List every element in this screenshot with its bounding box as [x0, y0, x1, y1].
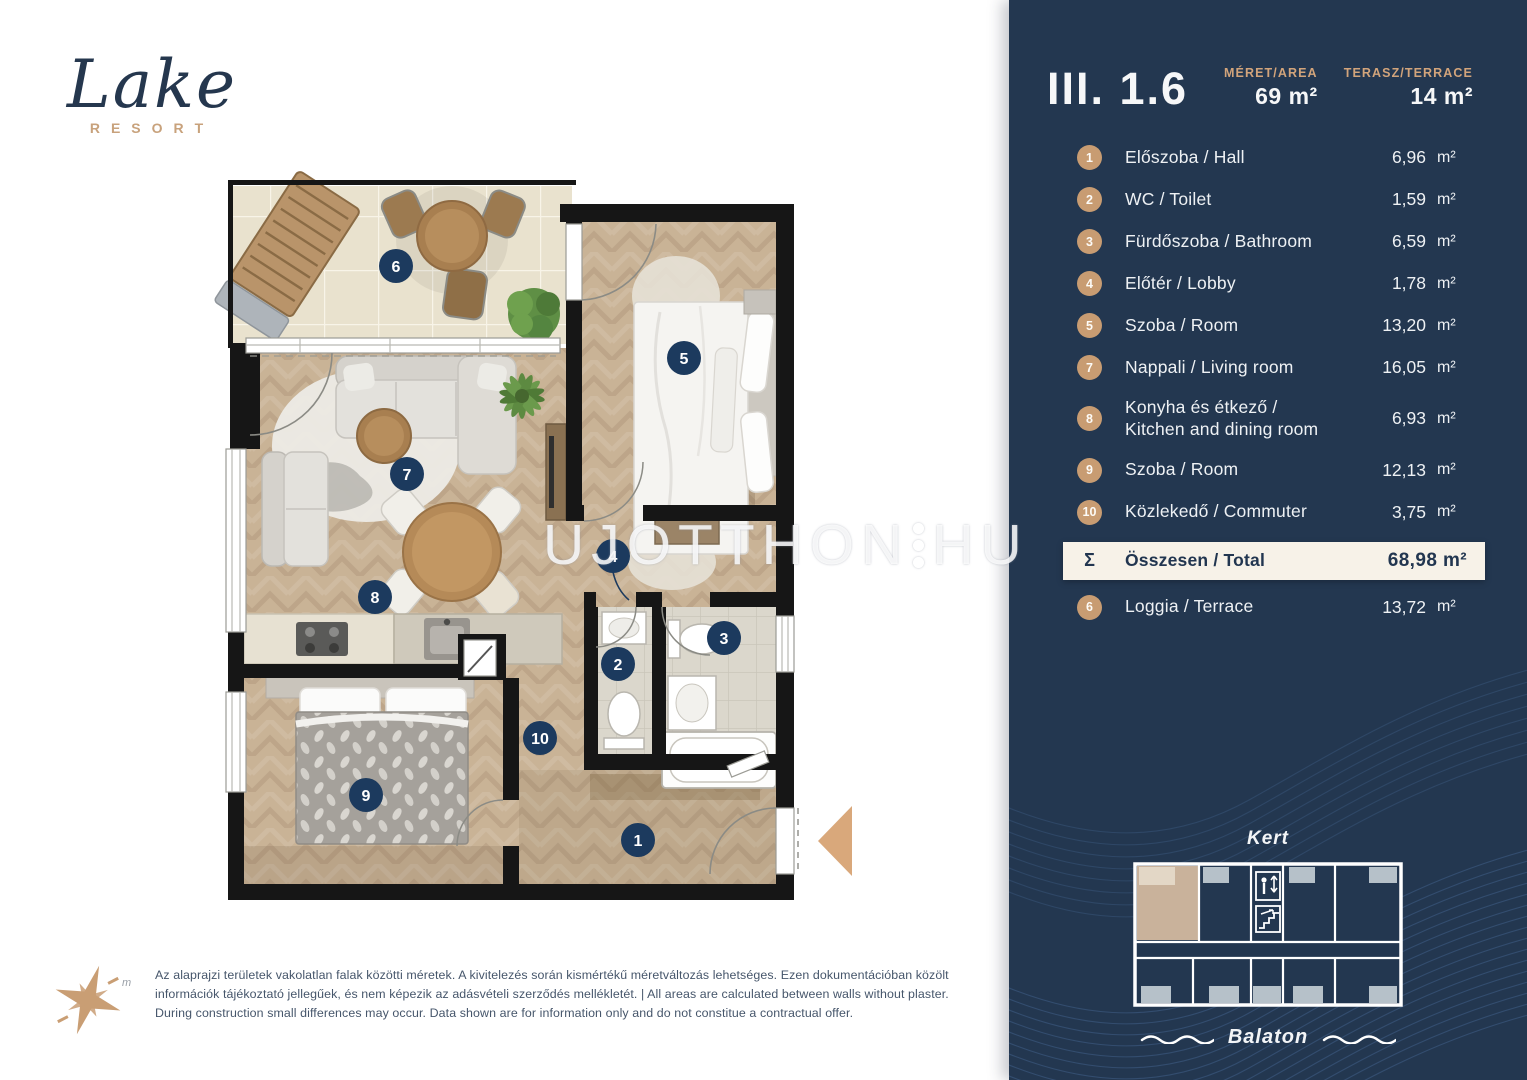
kitchen [244, 614, 562, 664]
room-list: 1 Előszoba / Hall 6,96 m² 2 WC / Toilet … [1077, 145, 1467, 620]
terrace-table-top [425, 209, 479, 263]
compass-mark: m [122, 977, 131, 989]
terrace-chair [442, 267, 488, 320]
row-badge: 8 [1077, 406, 1102, 431]
room-row-loggia: 6 Loggia / Terrace 13,72 m² [1077, 595, 1467, 620]
cooktop [296, 622, 348, 656]
wave-line-left [1140, 1032, 1214, 1044]
room-badge-8: 8 [358, 580, 392, 614]
svg-text:2: 2 [614, 657, 623, 674]
room-badge-7: 7 [390, 457, 424, 491]
room-badge-4: 4 [596, 539, 630, 573]
room-row-5: 5 Szoba / Room 13,20 m² [1077, 313, 1467, 338]
area-label: MÉRET/AREA [1224, 66, 1318, 80]
wave-line-right [1322, 1032, 1396, 1044]
disclaimer-line-1: Az alaprajzi területek vakolatlan falak … [155, 966, 985, 985]
room-row-7: 7 Nappali / Living room 16,05 m² [1077, 355, 1467, 380]
room-row-9: 9 Szoba / Room 12,13 m² [1077, 458, 1467, 483]
bedroom5-bench [744, 290, 776, 314]
page: Lake RESORT [0, 0, 1527, 1080]
disclaimer-line-3: During construction small differences ma… [155, 1004, 985, 1023]
bedroom9-furniture [266, 672, 474, 844]
wc-toilet [608, 692, 640, 736]
key-plan-garden-label: Kert [1009, 828, 1527, 850]
svg-text:1: 1 [634, 833, 643, 850]
panel-header: III. 1.6 MÉRET/AREA 69 m² TERASZ/TERRACE… [1009, 0, 1527, 111]
svg-text:7: 7 [403, 467, 412, 484]
row-badge: 4 [1077, 271, 1102, 296]
key-plan: Kert [1009, 828, 1527, 1049]
row-badge: 6 [1077, 595, 1102, 620]
info-panel: III. 1.6 MÉRET/AREA 69 m² TERASZ/TERRACE… [1009, 0, 1527, 1080]
terrace-label: TERASZ/TERRACE [1344, 66, 1473, 80]
room-badge-1: 1 [621, 823, 655, 857]
svg-text:3: 3 [720, 631, 729, 648]
room-badge-3: 3 [707, 621, 741, 655]
bedroom9-closet-band [240, 846, 503, 884]
coffee-table-top [364, 416, 404, 456]
room-badge-9: 9 [349, 778, 383, 812]
unit-id: III. 1.6 [1047, 66, 1188, 111]
tv-console [546, 424, 566, 520]
room-row-4: 4 Előtér / Lobby 1,78 m² [1077, 271, 1467, 296]
key-plan-drawing [1133, 862, 1403, 1007]
svg-text:6: 6 [392, 259, 401, 276]
sofa-small [262, 452, 328, 566]
room-badge-10: 10 [523, 721, 557, 755]
row-badge: 2 [1077, 187, 1102, 212]
total-label: Összesen / Total [1125, 550, 1388, 571]
room-row-1: 1 Előszoba / Hall 6,96 m² [1077, 145, 1467, 170]
wc-toilet-tank [604, 738, 644, 749]
room-badge-2: 2 [601, 647, 635, 681]
disclaimer-line-2: információk tájékoztató jellegűek, és ne… [155, 985, 985, 1004]
room-row-8: 8 Konyha és étkező /Kitchen and dining r… [1077, 397, 1467, 441]
terrace-stat: TERASZ/TERRACE 14 m² [1344, 66, 1473, 110]
key-plan-lake-label: Balaton [1228, 1026, 1308, 1049]
total-value: 68,98 m² [1388, 550, 1467, 572]
row-badge: 10 [1077, 500, 1102, 525]
floor-plan: 1 2 3 4 5 6 7 8 9 10 m [0, 0, 1009, 1080]
svg-text:9: 9 [362, 788, 371, 805]
sigma-icon: Σ [1077, 550, 1102, 571]
row-badge: 9 [1077, 458, 1102, 483]
row-badge: 5 [1077, 313, 1102, 338]
room-row-10: 10 Közlekedő / Commuter 3,75 m² [1077, 500, 1467, 525]
total-row: Σ Összesen / Total 68,98 m² [1063, 542, 1485, 580]
bed9-duvet [296, 712, 468, 844]
room-badge-5: 5 [667, 341, 701, 375]
area-stat: MÉRET/AREA 69 m² [1224, 66, 1318, 110]
room-badge-6: 6 [379, 249, 413, 283]
area-value: 69 m² [1224, 83, 1318, 110]
svg-text:10: 10 [531, 731, 549, 748]
row-badge: 3 [1077, 229, 1102, 254]
room-row-3: 3 Fürdőszoba / Bathroom 6,59 m² [1077, 229, 1467, 254]
svg-text:8: 8 [371, 590, 380, 607]
svg-text:4: 4 [609, 549, 618, 566]
row-badge: 1 [1077, 145, 1102, 170]
disclaimer: Az alaprajzi területek vakolatlan falak … [155, 966, 985, 1024]
room-row-2: 2 WC / Toilet 1,59 m² [1077, 187, 1467, 212]
terrace-value: 14 m² [1344, 83, 1473, 110]
svg-text:5: 5 [680, 351, 689, 368]
entrance-arrow [818, 806, 852, 876]
row-badge: 7 [1077, 355, 1102, 380]
compass-icon [45, 955, 132, 1044]
